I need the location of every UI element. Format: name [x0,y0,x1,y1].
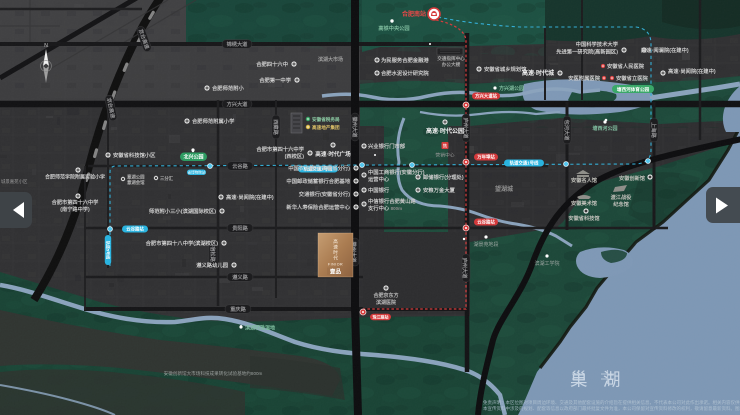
svg-text:(南宁路中学): (南宁路中学) [60,205,90,213]
svg-text:FINIOR: FINIOR [328,263,343,267]
svg-text:安徽省立医院: 安徽省立医院 [616,74,648,82]
svg-text:高速·时代广场: 高速·时代广场 [315,150,351,158]
svg-text:合肥师范附小: 合肥师范附小 [212,84,244,92]
svg-text:万年埠站: 万年埠站 [476,154,495,161]
svg-text:高速·时代城: 高速·时代城 [522,69,554,77]
svg-text:高铁中央公园: 高铁中央公园 [378,24,409,32]
svg-text:省博物院站: 省博物院站 [188,170,206,175]
svg-text:合肥市第四十八中学(滨湖校区): 合肥市第四十八中学(滨湖校区) [146,239,219,247]
svg-text:N: N [44,43,48,49]
svg-text:珠江路站: 珠江路站 [373,313,389,319]
svg-text:锦绣大道: 锦绣大道 [227,40,249,48]
svg-text:中国银行: 中国银行 [368,186,390,194]
svg-text:安徽创新馆: 安徽创新馆 [619,174,645,182]
svg-text:湖景苑地段: 湖景苑地段 [473,241,498,248]
svg-text:上海路: 上海路 [650,122,658,138]
svg-text:合肥市第四十六中学: 合肥市第四十六中学 [256,145,304,153]
svg-text:高速·时代公园: 高速·时代公园 [426,127,464,135]
svg-text:合肥四十六中: 合肥四十六中 [256,60,288,68]
svg-text:渡江战役: 渡江战役 [611,193,633,201]
svg-text:方兴大道站: 方兴大道站 [475,93,498,100]
svg-text:轨道5号线: 轨道5号线 [106,241,112,259]
svg-text:云谷路: 云谷路 [232,162,248,170]
svg-text:合肥师范学院附属实验小学: 合肥师范学院附属实验小学 [44,174,105,181]
svg-text:营销中心: 营销中心 [435,152,454,159]
svg-text:中国邮政储蓄银行合肥基地: 中国邮政储蓄银行合肥基地 [286,177,350,185]
svg-text:售: 售 [443,143,448,150]
svg-text:方兴大道: 方兴大道 [227,100,249,108]
svg-text:滨湖工学院: 滨湖工学院 [534,260,559,267]
svg-text:纪念馆: 纪念馆 [613,200,629,208]
svg-text:支行中心 800m: 支行中心 800m [367,204,402,212]
svg-text:北兴公园: 北兴公园 [183,154,203,161]
svg-text:邮储银行(分理处): 邮储银行(分理处) [423,173,464,181]
svg-text:壹品: 壹品 [330,268,342,276]
svg-text:运营中心: 运营中心 [368,175,390,183]
svg-text:安徽省税务局: 安徽省税务局 [312,116,340,123]
svg-text:合肥水泥设计研究院: 合肥水泥设计研究院 [381,69,429,77]
svg-text:安徽省科技馆小区: 安徽省科技馆小区 [113,151,156,159]
svg-text:中信银行合肥黄山路: 中信银行合肥黄山路 [368,197,416,205]
svg-text:滨湖医院: 滨湖医院 [376,299,396,306]
svg-text:安粮万金大厦: 安粮万金大厦 [423,186,455,194]
svg-text:方兴湖公园: 方兴湖公园 [499,85,524,92]
svg-text:包河大道: 包河大道 [563,120,571,142]
svg-text:遵义路: 遵义路 [232,273,248,281]
svg-text:安徽省人民医院: 安徽省人民医院 [607,62,645,70]
svg-text:滨湖明珠湿地: 滨湖明珠湿地 [245,325,275,332]
svg-text:安徽省城乡规划馆: 安徽省城乡规划馆 [484,65,527,73]
svg-text:先进第一研究院(高新园区): 先进第一研究院(高新园区) [555,48,618,56]
svg-text:合肥师范附属小学: 合肥师范附属小学 [192,117,235,125]
svg-text:塘西河体育公园: 塘西河体育公园 [617,86,650,93]
svg-text:西藏路: 西藏路 [272,119,280,135]
svg-text:高速·阅澜院(在建中): 高速·阅澜院(在建中) [641,46,689,54]
svg-text:安徽美术馆: 安徽美术馆 [571,199,597,207]
svg-text:代: 代 [333,255,338,262]
svg-text:中国科学技术大学: 中国科学技术大学 [576,40,619,48]
svg-text:免责声明：本区位图对项目周边环境、交通及其他配套设施的介绍旨: 免责声明：本区位图对项目周边环境、交通及其他配套设施的介绍旨在提供相关信息，不代… [483,399,740,406]
svg-text:高速·尚阅院(在建中): 高速·尚阅院(在建中) [226,193,274,201]
svg-text:办公大楼: 办公大楼 [442,61,461,68]
svg-text:望湖城: 望湖城 [495,185,513,193]
svg-text:新华人寿保险合肥运营中心: 新华人寿保险合肥运营中心 [286,203,350,211]
svg-text:云谷路站: 云谷路站 [126,226,144,233]
svg-text:重庆路: 重庆路 [230,305,246,313]
svg-text:贵阳路: 贵阳路 [232,224,248,232]
svg-text:安徽名人馆: 安徽名人馆 [571,176,597,184]
svg-text:合肥京东方: 合肥京东方 [372,292,398,299]
svg-text:庐州大道: 庐州大道 [461,258,469,280]
svg-text:交通指挥中心: 交通指挥中心 [437,55,465,62]
svg-text:云谷路站: 云谷路站 [477,219,495,226]
svg-text:遵义路幼儿园: 遵义路幼儿园 [196,261,228,269]
svg-text:塘西河公园: 塘西河公园 [592,125,617,132]
svg-text:(西校区): (西校区) [285,152,305,160]
svg-text:高速地产集团: 高速地产集团 [312,124,340,131]
svg-text:三分汇: 三分汇 [160,175,174,182]
svg-text:师范附小三小(滨湖国际校区): 师范附小三小(滨湖国际校区) [149,207,216,215]
svg-text:兴业银行门市部: 兴业银行门市部 [368,142,406,150]
svg-text:合肥市第四十六中学: 合肥市第四十六中学 [52,198,99,206]
svg-text:安徽省科技馆: 安徽省科技馆 [568,214,599,222]
svg-text:安徽创新馆大市场科技成果转化试验基地约800m: 安徽创新馆大市场科技成果转化试验基地约800m [164,370,263,377]
svg-text:合肥南站: 合肥南站 [402,10,426,18]
svg-text:交通银行(安徽省分行): 交通银行(安徽省分行) [299,190,350,198]
svg-text:高速·尚阅院(在建中): 高速·尚阅院(在建中) [668,67,716,75]
svg-text:安医附属医院: 安医附属医院 [568,74,600,82]
svg-text:宿松路: 宿松路 [209,246,217,262]
svg-text:中国农业银行(安徽省分行): 中国农业银行(安徽省分行) [288,164,350,172]
svg-text:轨道交通1号线: 轨道交通1号线 [510,160,539,167]
svg-text:本宣传资料中涉及的规划、配套等信息以政府部门最终批复文件为准: 本宣传资料中涉及的规划、配套等信息以政府部门最终批复文件为准，本公司保留对宣传资… [483,405,740,412]
svg-text:时: 时 [333,249,338,255]
svg-text:城景嘉苑小区: 城景嘉苑小区 [1,178,28,185]
svg-text:合肥第一中学: 合肥第一中学 [259,76,291,84]
svg-text:为民服务合肥金融港: 为民服务合肥金融港 [381,56,429,64]
svg-text:意湖会馆: 意湖会馆 [127,179,145,186]
svg-text:中国工商银行(安徽分行): 中国工商银行(安徽分行) [368,168,425,176]
svg-text:滨湖大市场: 滨湖大市场 [318,56,343,63]
svg-text:徽州大道: 徽州大道 [351,116,359,139]
